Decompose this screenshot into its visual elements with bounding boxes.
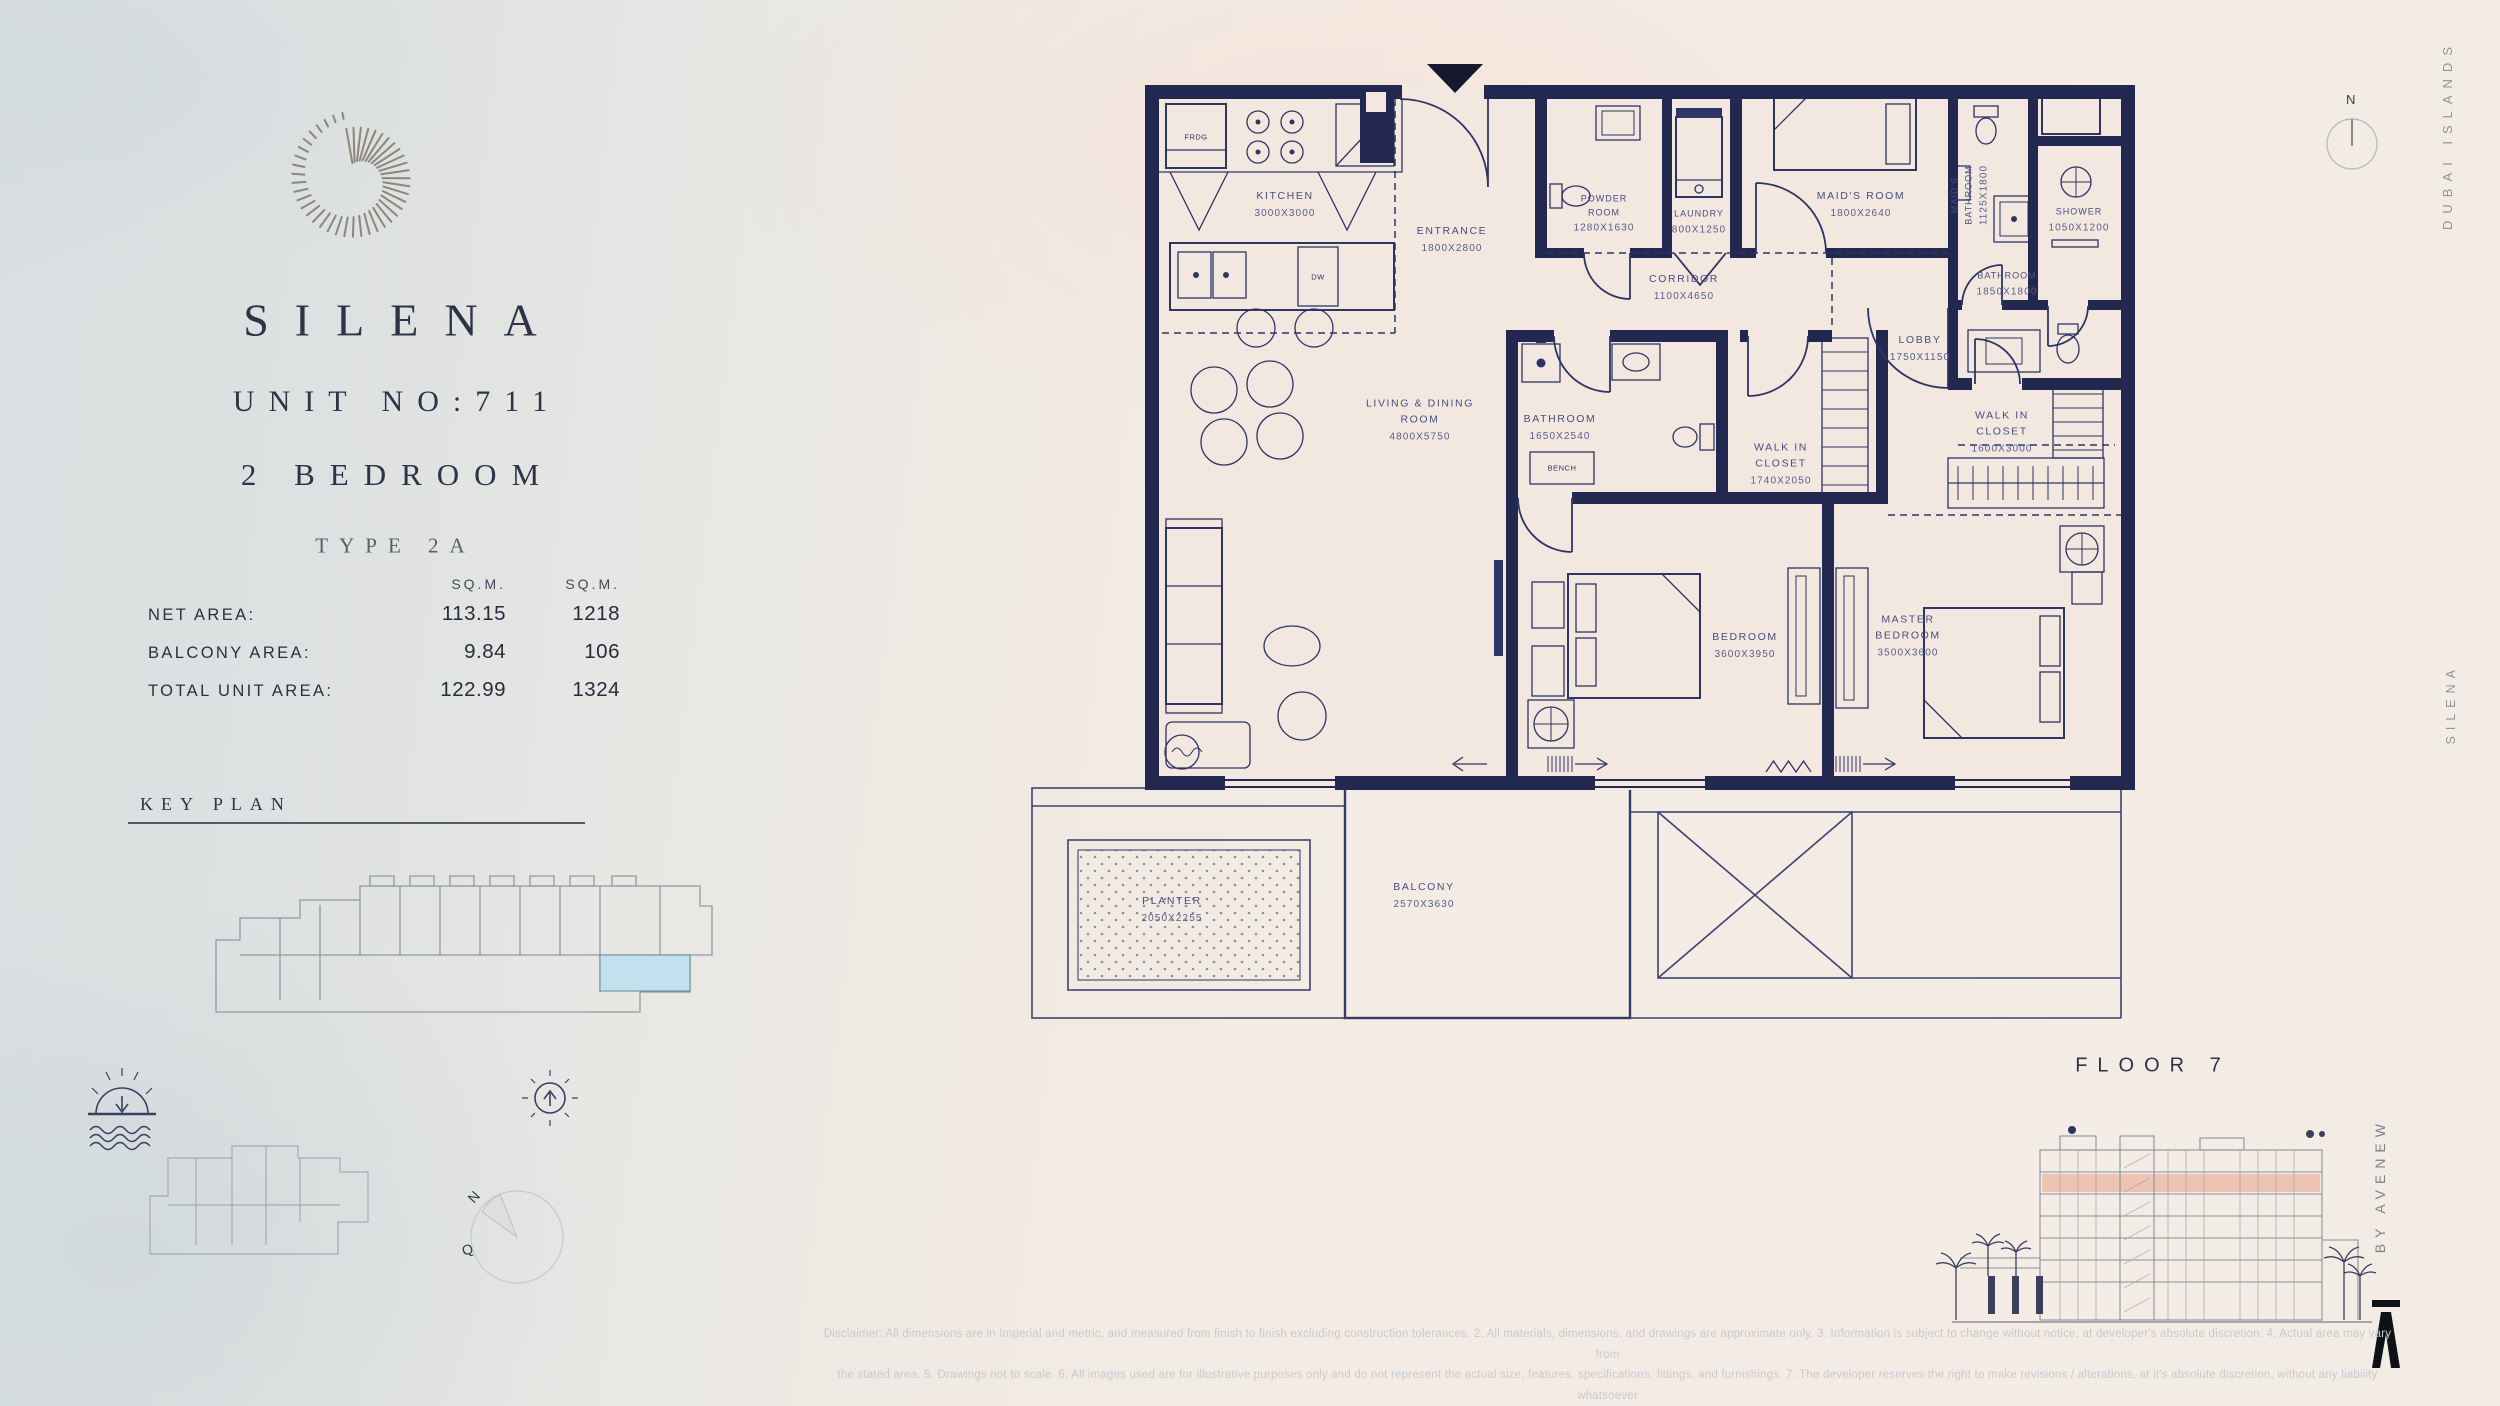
table-row: NET AREA: 113.15 1218 xyxy=(148,602,620,640)
disclaimer-line-1: Disclaimer: All dimensions are in Imperi… xyxy=(820,1324,2395,1365)
area-table: SQ.M. SQ.M. NET AREA: 113.15 1218 BALCON… xyxy=(148,576,620,716)
dishwasher-label: DW xyxy=(1311,273,1325,282)
bedroom-count: 2 BEDROOM xyxy=(226,457,554,493)
key-plan-rule xyxy=(128,822,585,824)
room-label-bathroom-main: BATHROOM1650X2540 xyxy=(1510,412,1610,444)
key-plan-drawing xyxy=(150,876,712,1254)
room-label-entrance: ENTRANCE1800X2800 xyxy=(1392,224,1512,256)
project-vertical-text: SILENA xyxy=(2444,664,2458,744)
col-header-sqm: SQ.M. xyxy=(400,576,506,592)
room-label-planter: PLANTER2050X2255 xyxy=(1112,894,1232,926)
room-label-living-dining: LIVING & DINING ROOM4800X5750 xyxy=(1355,396,1485,444)
sunset-icon xyxy=(88,1068,156,1150)
room-label-bathroom-top: BATHROOM1850X1800 xyxy=(1957,269,2057,299)
north-label: N xyxy=(2346,92,2355,107)
unit-number: UNIT NO:711 xyxy=(219,385,561,419)
room-label-master-bedroom: MASTER BEDROOM3500X3600 xyxy=(1858,612,1958,660)
room-label-balcony: BALCONY2570X3630 xyxy=(1354,880,1494,912)
compass-west-label: Q xyxy=(460,1240,477,1259)
room-label-kitchen: KITCHEN3000X3000 xyxy=(1210,189,1360,221)
room-label-maids-bathroom: MAID'S BATHROOM1125X1800 xyxy=(1949,152,1992,238)
fridge-label: FRDG xyxy=(1184,133,1207,142)
palm-trees xyxy=(1936,1234,2376,1320)
floor-label: FLOOR 7 xyxy=(2065,1055,2231,1078)
north-indicator: N xyxy=(2327,92,2377,169)
disclaimer-text: Disclaimer: All dimensions are in Imperi… xyxy=(820,1324,2395,1406)
room-label-powder-room: POWDER ROOM1280X1630 xyxy=(1573,193,1635,236)
key-plan-unit-highlight xyxy=(600,955,690,991)
room-label-bedroom: BEDROOM3600X3950 xyxy=(1680,630,1810,662)
key-plan-title: KEY PLAN xyxy=(140,794,292,815)
room-label-maids-room: MAID'S ROOM1800X2640 xyxy=(1776,189,1946,221)
silena-logo xyxy=(292,113,409,237)
table-row: BALCONY AREA: 9.84 106 xyxy=(148,640,620,678)
project-title: SILENA xyxy=(217,294,563,347)
unit-type: TYPE 2A xyxy=(304,534,475,559)
room-label-corridor: CORRIDOR1100X4650 xyxy=(1619,272,1749,304)
table-row: TOTAL UNIT AREA: 122.99 1324 xyxy=(148,678,620,716)
developer-vertical-text: BY AVENEW xyxy=(2372,1118,2388,1253)
compass-rose: N Q xyxy=(460,1187,563,1283)
room-label-walk-in-closet-1: WALK IN CLOSET1740X2050 xyxy=(1735,440,1827,488)
sunrise-icon xyxy=(522,1070,578,1126)
room-label-lobby: LOBBY1750X1150 xyxy=(1870,333,1970,365)
compass-north-label: N xyxy=(464,1187,483,1206)
building-elevation xyxy=(1936,1126,2376,1322)
location-vertical-text: DUBAI ISLANDS xyxy=(2440,40,2455,230)
room-label-shower: SHOWER1050X1200 xyxy=(2039,205,2119,235)
bench-label: BENCH xyxy=(1548,464,1577,473)
col-header-sqft: SQ.M. xyxy=(506,576,620,592)
room-label-walk-in-closet-2: WALK IN CLOSET1600X3000 xyxy=(1954,408,2050,456)
room-label-laundry: LAUNDRY800X1250 xyxy=(1664,207,1734,237)
disclaimer-line-2: the stated area. 5. Drawings not to scal… xyxy=(820,1365,2395,1406)
brochure-page: N Q N xyxy=(0,0,2500,1406)
